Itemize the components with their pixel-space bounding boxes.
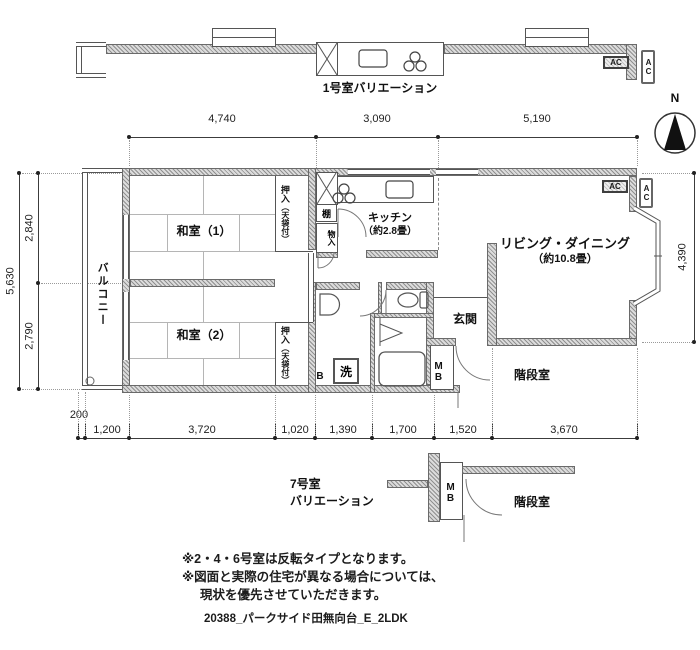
dim-right: 4,390 <box>678 243 689 271</box>
washitsu2-window <box>123 292 129 360</box>
ac-outdoor-icon: AC <box>639 178 653 208</box>
variation1-window-bay-left-mullion <box>213 37 275 38</box>
dim-ext-line <box>434 395 435 436</box>
note-line-3: 現状を優先させていただきます。 <box>200 584 386 603</box>
bath-door-icon <box>380 318 402 346</box>
compass-icon <box>655 113 695 153</box>
dim-bottom-4: 1,390 <box>313 425 373 436</box>
dim-line-top <box>129 137 637 138</box>
closet-label-main: 押入 <box>280 185 290 203</box>
dim-bottom-6: 1,520 <box>433 425 493 436</box>
note-line-1: ※2・4・6号室は反転タイプとなります。 <box>182 548 413 567</box>
dim-ext-line <box>275 395 276 436</box>
ac-unit-icon: AC <box>602 180 628 193</box>
dim-bottom-offset: 200 <box>64 410 94 421</box>
dim-left-upper: 2,840 <box>25 214 36 242</box>
variation7-wall-vertical <box>428 453 440 522</box>
laundry-pan-box: 洗 <box>333 358 359 384</box>
washitsu1-window <box>123 215 129 279</box>
dim-top-3: 5,190 <box>487 114 587 125</box>
plan-footer-title: 20388_パークサイド田無向台_E_2LDK <box>204 610 408 626</box>
closet1-wall <box>275 251 313 252</box>
living-size-label: （約10.8畳） <box>480 253 650 265</box>
dim-ext-line <box>637 348 638 436</box>
wall-between-washitsu <box>130 279 275 287</box>
dim-bottom-7: 3,670 <box>534 425 594 436</box>
dim-left-lower: 2,790 <box>25 322 36 350</box>
dim-bottom-2: 3,720 <box>172 425 232 436</box>
tatami-line <box>130 322 275 323</box>
tatami-line <box>203 287 204 322</box>
living-window-top <box>436 169 478 175</box>
wall-washroom-top-left <box>316 282 360 290</box>
wall-toilet-left <box>378 282 382 317</box>
dim-ext-line <box>78 392 79 436</box>
closet-label-sub: （天袋付） <box>281 203 290 243</box>
meter-box-label: MB <box>433 356 444 388</box>
toilet-icon <box>398 292 428 308</box>
storage-box: 物入 <box>316 223 338 253</box>
dim-line-left-split <box>38 173 39 389</box>
wall-core-upper <box>308 168 316 250</box>
dim-ext-line <box>372 395 373 436</box>
dim-ext-line <box>492 348 493 436</box>
variation1-kitchen-counter <box>337 42 444 76</box>
variation1-shaft-box <box>316 42 338 76</box>
dim-left-total: 5,630 <box>6 267 17 295</box>
variation7-wall-right <box>462 466 575 474</box>
kitchen-window <box>348 169 430 175</box>
kitchen-label: キッチン <box>340 212 440 224</box>
washbasin-icon <box>320 294 340 315</box>
wall-living-bottom <box>490 338 637 346</box>
variation7-caption-line2: バリエーション <box>290 495 400 508</box>
dim-line-left-total <box>19 173 20 389</box>
shelf-box: 棚 <box>316 204 337 222</box>
living-label: リビング・ダイニング <box>480 237 650 251</box>
washitsu2-label: 和室（2） <box>150 329 258 342</box>
dim-ext-line <box>316 140 317 170</box>
balcony-wall-top <box>82 168 123 173</box>
variation1-balcony-wall-top <box>76 42 106 47</box>
dim-ext-line <box>129 395 130 436</box>
tatami-line <box>203 251 204 279</box>
genkan-label: 玄関 <box>441 313 489 326</box>
variation1-balcony-wall-bottom <box>76 73 106 78</box>
tatami-line <box>203 358 204 385</box>
variation1-caption: 1号室バリエーション <box>280 82 480 95</box>
dim-ext-line <box>41 283 121 284</box>
dim-ext-line <box>129 140 130 166</box>
tatami-line <box>203 176 204 214</box>
dim-ext-line <box>642 342 692 343</box>
bathtub-icon <box>379 352 425 386</box>
dim-ext-line <box>642 173 692 174</box>
stairwell-label: 階段室 <box>504 369 560 382</box>
balcony-label: バルコニー <box>96 238 108 350</box>
variation7-caption-line1: 7号室 <box>290 478 380 491</box>
variation7-stairwell-label: 階段室 <box>504 496 560 509</box>
wall-right-upper <box>629 176 637 212</box>
balcony-wall-bottom <box>82 385 123 390</box>
variation7-meter-box-label: MB <box>445 478 456 508</box>
wall-bath-left <box>370 313 375 393</box>
closet1-label: 押入（天袋付） <box>279 182 289 246</box>
dim-ext-line <box>637 140 638 166</box>
closet-label-main: 押入 <box>280 326 290 344</box>
bath-mark-label: B <box>314 371 326 382</box>
ac-unit-icon: AC <box>603 56 629 69</box>
pipe-shaft-box <box>316 172 338 205</box>
ac-outdoor-icon: AC <box>641 50 655 84</box>
closet-label-sub: （天袋付） <box>281 344 290 384</box>
tatami-line <box>130 214 275 215</box>
compass-north-label: N <box>667 92 683 105</box>
sliding-door <box>308 253 314 322</box>
washitsu1-label: 和室（1） <box>150 225 258 238</box>
wall-bath-top <box>370 313 434 318</box>
wall-bottom <box>122 385 460 393</box>
closet2-label: 押入（天袋付） <box>279 325 289 385</box>
dim-ext-line <box>315 395 316 436</box>
dim-bottom-1: 1,200 <box>77 425 137 436</box>
floor-plan-page: AC AC 1号室バリエーション N 4,740 3,090 5,190 5,6… <box>0 0 700 650</box>
closet1-wall <box>275 176 276 251</box>
closet2-wall <box>275 322 276 385</box>
kitchen-size-label: （約2.8畳） <box>340 226 440 237</box>
variation1-window-bay-right-mullion <box>526 37 588 38</box>
wall-entrance-bottom <box>426 338 456 346</box>
dim-line-bottom <box>78 438 637 439</box>
kitchen-counter <box>337 176 434 203</box>
dim-top-2: 3,090 <box>327 114 427 125</box>
variation7-wall-left <box>387 480 428 488</box>
dim-top-1: 4,740 <box>172 114 272 125</box>
balcony-rail <box>82 168 88 390</box>
dim-ext-line <box>85 392 86 436</box>
note-line-2: ※図面と実際の住宅が異なる場合については、 <box>182 566 444 585</box>
wall-kitchen-bottom-right <box>366 250 438 258</box>
entrance-step-line <box>434 297 487 298</box>
dim-ext-line <box>438 140 439 170</box>
closet2-wall <box>275 322 313 323</box>
dim-line-right <box>694 173 695 342</box>
dim-ext-line <box>22 173 120 174</box>
dim-bottom-5: 1,700 <box>373 425 433 436</box>
